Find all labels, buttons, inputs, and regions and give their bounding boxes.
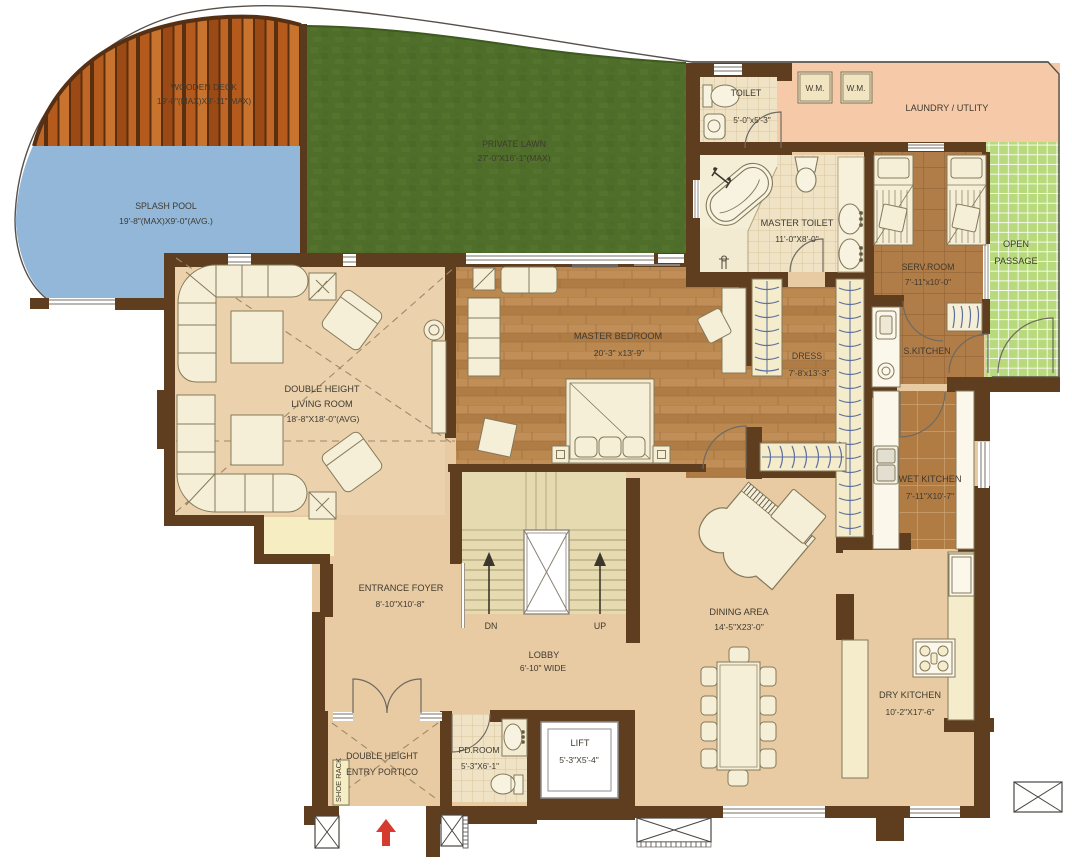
svg-text:DINING AREA: DINING AREA (709, 607, 769, 617)
svg-text:DOUBLE HEIGHT: DOUBLE HEIGHT (284, 384, 359, 394)
svg-text:SPLASH POOL: SPLASH POOL (135, 201, 197, 211)
svg-text:DN: DN (485, 621, 498, 631)
svg-text:27'-0"X16'-1"(MAX): 27'-0"X16'-1"(MAX) (477, 153, 550, 163)
svg-text:S.KITCHEN: S.KITCHEN (904, 346, 951, 356)
svg-text:ENTRY PORTICO: ENTRY PORTICO (346, 767, 418, 777)
svg-text:7'-11"x10'-0": 7'-11"x10'-0" (905, 277, 951, 287)
svg-text:SHOE RACK: SHOE RACK (334, 758, 343, 802)
svg-text:SERV.ROOM: SERV.ROOM (902, 262, 955, 272)
svg-text:DRY KITCHEN: DRY KITCHEN (879, 690, 941, 700)
svg-text:11'-0"X8'-0": 11'-0"X8'-0" (775, 234, 819, 244)
svg-text:OPEN: OPEN (1003, 239, 1029, 249)
svg-text:DRESS: DRESS (792, 351, 822, 361)
svg-text:DOUBLE HEIGHT: DOUBLE HEIGHT (346, 751, 418, 761)
svg-text:PASSAGE: PASSAGE (994, 256, 1037, 266)
svg-text:MASTER BEDROOM: MASTER BEDROOM (574, 331, 662, 341)
svg-text:LIFT: LIFT (571, 738, 590, 748)
svg-text:20'-3" x13'-9": 20'-3" x13'-9" (594, 348, 644, 358)
svg-text:MASTER TOILET: MASTER TOILET (761, 218, 834, 228)
svg-text:ENTRANCE FOYER: ENTRANCE FOYER (359, 583, 444, 593)
svg-text:W.M.: W.M. (806, 83, 825, 93)
svg-text:LOBBY: LOBBY (529, 650, 560, 660)
svg-text:19'-0"(MAX)X8'-11"(MAX): 19'-0"(MAX)X8'-11"(MAX) (157, 96, 251, 106)
svg-text:TOILET: TOILET (731, 88, 762, 98)
svg-text:19'-8"(MAX)X9'-0"(AVG.): 19'-8"(MAX)X9'-0"(AVG.) (119, 216, 213, 226)
svg-text:7'-11"X10'-7": 7'-11"X10'-7" (906, 491, 954, 501)
svg-text:18'-8"X18'-0"(AVG): 18'-8"X18'-0"(AVG) (287, 414, 360, 424)
svg-text:14'-5"X23'-0": 14'-5"X23'-0" (714, 622, 764, 632)
svg-text:UP: UP (594, 621, 606, 631)
svg-text:5'-0"x5'-3": 5'-0"x5'-3" (733, 115, 771, 125)
svg-text:LAUNDRY / UTLITY: LAUNDRY / UTLITY (906, 103, 989, 113)
svg-text:PD.ROOM: PD.ROOM (458, 745, 499, 755)
svg-text:LIVING ROOM: LIVING ROOM (291, 399, 352, 409)
svg-text:10'-2"X17'-6": 10'-2"X17'-6" (886, 707, 935, 717)
svg-text:W.M.: W.M. (847, 83, 866, 93)
svg-text:7'-8'x13'-3": 7'-8'x13'-3" (789, 368, 830, 378)
svg-text:6'-10" WIDE: 6'-10" WIDE (520, 663, 567, 673)
svg-text:8'-10"X10'-8": 8'-10"X10'-8" (376, 599, 425, 609)
svg-text:5'-3"X6'-1": 5'-3"X6'-1" (461, 762, 499, 771)
svg-text:WET KITCHEN: WET KITCHEN (898, 474, 961, 484)
svg-text:5'-3"X5'-4": 5'-3"X5'-4" (559, 755, 599, 765)
svg-text:WOODEN DECK: WOODEN DECK (171, 82, 237, 92)
svg-text:PRIVATE LAWN: PRIVATE LAWN (482, 139, 546, 149)
